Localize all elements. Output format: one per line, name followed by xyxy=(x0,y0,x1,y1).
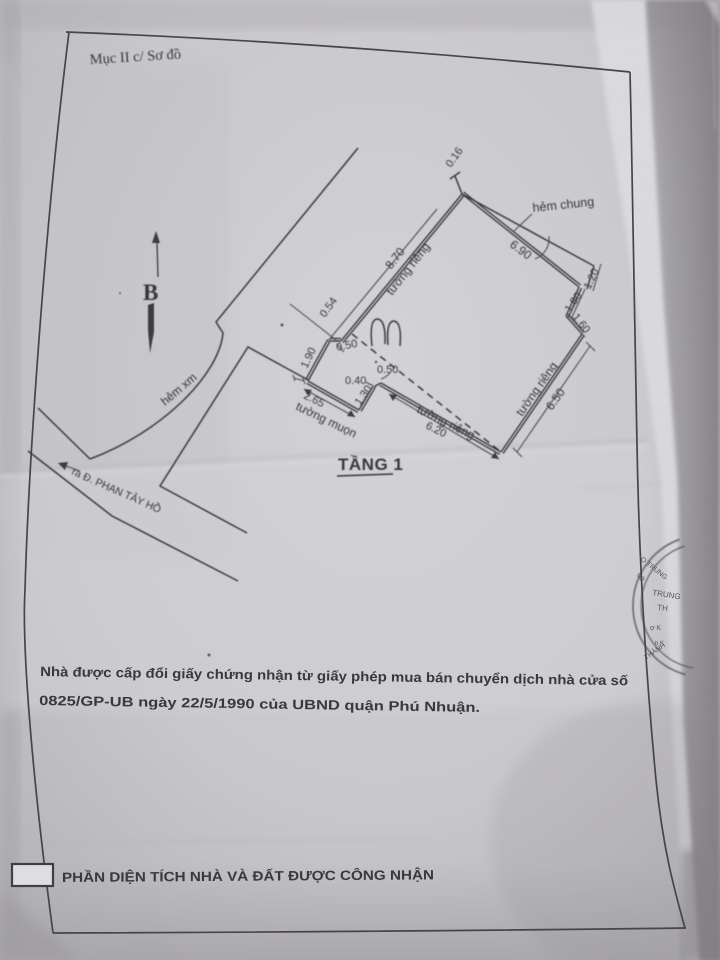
svg-text:ợ K: ợ K xyxy=(650,625,662,632)
svg-text:TH: TH xyxy=(657,603,669,613)
svg-text:0.50: 0.50 xyxy=(377,364,398,376)
svg-text:PHẦN DIỆN TÍCH NHÀ VÀ ĐẤT ĐƯỢC: PHẦN DIỆN TÍCH NHÀ VÀ ĐẤT ĐƯỢC CÔNG NHẬN xyxy=(62,867,434,885)
svg-text:b K: b K xyxy=(655,641,664,647)
svg-text:TẦNG 1: TẦNG 1 xyxy=(338,455,403,474)
svg-text:B: B xyxy=(143,280,158,305)
